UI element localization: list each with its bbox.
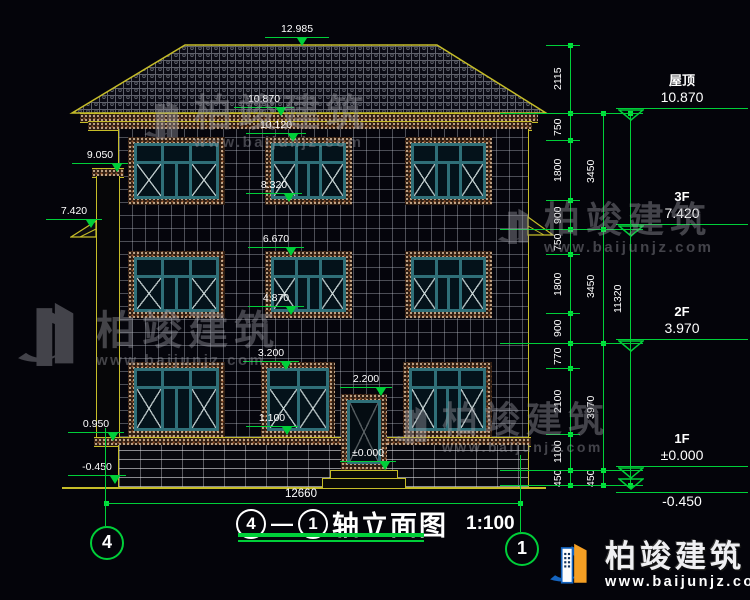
window-transom [414, 260, 483, 278]
window-lower [137, 164, 216, 196]
elevation-marker: 9.050 [72, 150, 128, 177]
dim-value: 3450 [586, 269, 602, 303]
level-triangle-icon [618, 478, 644, 490]
window-pane [435, 164, 459, 196]
dim-value: 750 [553, 110, 569, 144]
elevation-marker: 0.950 [68, 419, 124, 446]
level-name: 2F [616, 305, 748, 320]
dim-extension-line [546, 368, 580, 369]
watermark-logo-icon [6, 295, 88, 387]
dim-value: 1800 [553, 153, 569, 187]
level-elevation: 3.970 [616, 320, 748, 337]
dim-value: 3450 [586, 154, 602, 188]
transom-pane [274, 260, 295, 275]
title-underline [238, 540, 424, 542]
window-pane [459, 164, 483, 196]
watermark: 柏竣建筑 www.baijunjz.com [492, 202, 713, 258]
company-url: www.baijunjz.com [605, 572, 750, 594]
dim-extension-line [546, 45, 580, 46]
axis-bubble-4: 4 [90, 526, 124, 560]
watermark-url: www.baijunjz.com [544, 238, 713, 258]
elevation-value: 2.200 [340, 374, 392, 387]
transom-pane [414, 260, 435, 275]
elevation-value: 8.320 [246, 180, 302, 193]
dim-value: 450 [586, 461, 602, 495]
window-transom [274, 260, 343, 278]
elevation-value: 1.100 [246, 413, 298, 426]
transom-pane [319, 260, 343, 275]
window-surround [405, 137, 492, 205]
elevation-value: 9.050 [72, 150, 128, 163]
watermark: 柏竣建筑 www.baijunjz.com [6, 295, 280, 387]
bottom-dim-value: 12660 [285, 488, 317, 500]
watermark-url: www.baijunjz.com [96, 351, 280, 371]
transom-pane [414, 146, 435, 161]
window-frame [411, 143, 486, 199]
level-elevation: 10.870 [616, 89, 748, 106]
window [405, 137, 492, 205]
level-marker: -0.450 [616, 490, 748, 510]
level-name: 屋顶 [616, 74, 748, 89]
transom-pane [189, 260, 216, 275]
level-triangle-icon [618, 109, 644, 121]
watermark-brand: 柏竣建筑 [194, 95, 370, 133]
watermark-brand: 柏竣建筑 [544, 202, 713, 238]
transom-pane [435, 146, 459, 161]
watermark-logo-icon [492, 204, 536, 256]
window-pane [435, 278, 459, 309]
window-pane [319, 164, 343, 196]
dim-extension-line [546, 313, 580, 314]
cad-elevation-drawing: 12.985 10.870 10.120 9.050 8.320 7.420 6… [0, 0, 750, 600]
watermark-url: www.baijunjz.com [194, 133, 370, 153]
level-triangle-icon [618, 467, 644, 479]
window-lower [414, 164, 483, 196]
dim-value: 450 [553, 461, 569, 495]
transom-pane [434, 371, 459, 386]
elevation-triangle-icon [108, 433, 118, 446]
window-pane [459, 278, 483, 309]
elevation-value: 6.670 [248, 234, 304, 247]
elevation-triangle-icon [282, 427, 292, 440]
elevation-triangle-icon [86, 220, 96, 233]
window-transom [412, 371, 483, 389]
window-pane [414, 164, 435, 196]
elevation-triangle-icon [380, 462, 390, 475]
elevation-triangle-icon [286, 307, 296, 320]
window-pane [161, 389, 188, 428]
level-elevation: ±0.000 [616, 447, 748, 464]
dim-value: 1800 [553, 267, 569, 301]
dim-chain-line [630, 113, 631, 485]
company-logo-icon [543, 538, 597, 596]
elevation-marker: -0.450 [68, 462, 126, 489]
watermark-url: www.baijunjz.com [442, 438, 610, 457]
window-pane [137, 389, 161, 428]
axis-line [105, 428, 106, 526]
level-name: 1F [616, 432, 748, 447]
title-underline [238, 533, 424, 537]
elevation-value: -0.450 [68, 462, 126, 475]
window-lower [137, 389, 216, 428]
elevation-triangle-icon [112, 164, 122, 177]
elevation-triangle-icon [376, 388, 386, 401]
watermark-brand: 柏竣建筑 [442, 402, 610, 438]
window-surround [405, 251, 492, 318]
title-scale: 1:100 [466, 513, 515, 535]
elevation-triangle-icon [286, 248, 296, 261]
window-pane [319, 278, 343, 309]
transom-pane [137, 260, 161, 275]
dim-value: 2115 [553, 62, 569, 96]
level-marker: 1F ±0.000 [616, 432, 748, 467]
window-transom [137, 260, 216, 278]
company-logo: 柏竣建筑 www.baijunjz.com [543, 538, 750, 596]
window-transom [414, 146, 483, 164]
level-triangle-icon [618, 340, 644, 352]
watermark: 柏竣建筑 www.baijunjz.com [388, 402, 610, 457]
window-pane [414, 278, 435, 309]
watermark-logo-icon [138, 96, 186, 152]
transom-pane [295, 260, 319, 275]
title-text: 轴立面图 [332, 504, 448, 543]
elevation-marker: 7.420 [46, 206, 102, 233]
watermark-brand: 柏竣建筑 [96, 311, 280, 351]
transom-pane [459, 146, 483, 161]
elevation-value: 7.420 [46, 206, 102, 219]
elevation-triangle-icon [284, 194, 294, 207]
level-marker: 屋顶 10.870 [616, 74, 748, 109]
elevation-marker: 2.200 [340, 374, 392, 401]
window-pane [161, 164, 188, 196]
window-pane [137, 164, 161, 196]
company-name: 柏竣建筑 [605, 541, 750, 572]
transom-pane [435, 260, 459, 275]
window-pane [189, 389, 216, 428]
transom-pane [412, 371, 434, 386]
window-lower [414, 278, 483, 309]
elevation-triangle-icon [297, 38, 307, 51]
door-steps [322, 478, 406, 489]
elevation-triangle-icon [281, 362, 291, 375]
elevation-triangle-icon [110, 476, 120, 489]
transom-pane [297, 371, 327, 386]
drawing-title: 4 — 1 轴立面图 1:100 [236, 504, 515, 543]
elevation-marker: 12.985 [265, 24, 329, 51]
elevation-marker: 6.670 [248, 234, 304, 261]
level-marker: 2F 3.970 [616, 305, 748, 340]
elevation-marker: 8.320 [246, 180, 302, 207]
elevation-value: 0.950 [68, 419, 124, 432]
elevation-value: 12.985 [265, 24, 329, 37]
watermark-logo-icon [388, 402, 434, 456]
transom-pane [161, 260, 188, 275]
window-pane [297, 389, 327, 428]
window-frame [411, 257, 486, 312]
dim-extension-line [546, 140, 580, 141]
window-pane [189, 164, 216, 196]
transom-pane [458, 371, 483, 386]
window [405, 251, 492, 318]
elevation-marker: 1.100 [246, 413, 298, 440]
watermark: 柏竣建筑 www.baijunjz.com [138, 95, 370, 153]
transom-pane [459, 260, 483, 275]
level-elevation: -0.450 [616, 493, 748, 510]
axis-line [520, 455, 521, 532]
